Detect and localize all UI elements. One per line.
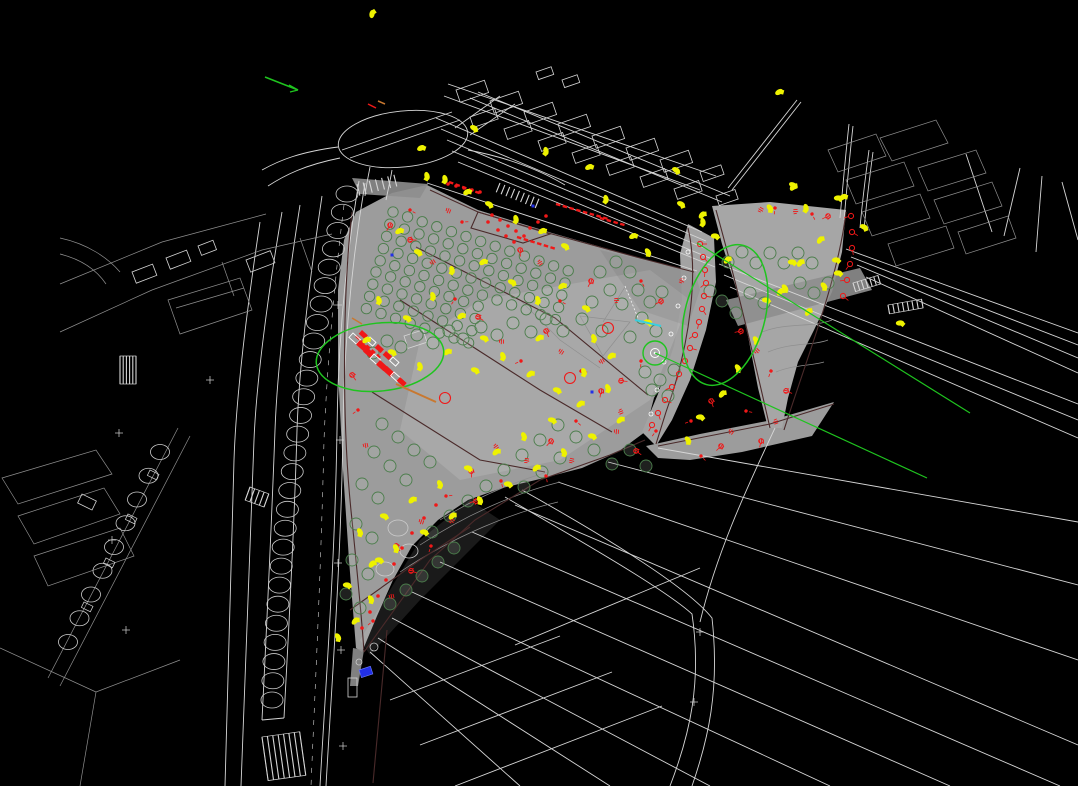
tree-canopy (498, 464, 510, 476)
tree-canopy (668, 364, 680, 376)
tree-canopy (654, 374, 666, 386)
yellow-blob (581, 401, 584, 406)
survey-tick (334, 559, 342, 567)
tree-canopy (378, 243, 388, 253)
tree-canopy (646, 384, 658, 396)
street-tree (82, 587, 101, 602)
tree-canopy (402, 212, 412, 222)
tree-canopy (487, 253, 497, 263)
building-outline (562, 75, 580, 88)
yellow-point-marker (733, 363, 742, 373)
hatch-bar (294, 732, 300, 776)
road-line (412, 592, 830, 786)
red-dash (576, 209, 581, 213)
blue-point (591, 391, 594, 394)
red-point (368, 610, 372, 614)
street-tree (267, 596, 289, 612)
tree-canopy (408, 444, 420, 456)
red-survey-marker (734, 328, 744, 335)
yellow-point-marker (774, 88, 784, 97)
tree-canopy (524, 292, 534, 302)
bench-outline (125, 514, 137, 524)
tree-canopy (454, 256, 464, 266)
tree-canopy (385, 272, 395, 282)
road-line (390, 636, 560, 700)
tree-canopy (484, 266, 494, 276)
roundabout-chord (342, 112, 452, 150)
tree-canopy (463, 285, 473, 295)
tree-canopy (432, 556, 444, 568)
tree-canopy (397, 289, 407, 299)
street-tree (310, 296, 332, 312)
yellow-point-marker (423, 171, 430, 181)
red-survey-marker (708, 398, 716, 408)
tree-canopy (624, 266, 636, 278)
tree-canopy (639, 366, 651, 378)
red-ring (848, 213, 854, 219)
orange-segment (378, 101, 385, 104)
road-line (851, 257, 1078, 345)
yellow-blob (783, 289, 788, 293)
tree-canopy (388, 207, 398, 217)
red-point (528, 226, 532, 230)
tree-canopy (416, 570, 428, 582)
tree-canopy (446, 226, 456, 236)
road-line (728, 100, 797, 188)
yellow-blob (822, 287, 827, 291)
red-point (536, 220, 540, 224)
street-tree (128, 492, 147, 507)
yellow-point-marker (699, 217, 706, 227)
tree-canopy (610, 256, 622, 268)
hatch-bar (284, 734, 290, 778)
tree-canopy (444, 291, 454, 301)
tree-canopy (594, 266, 606, 278)
tree-canopy (381, 231, 391, 241)
building-outline (166, 250, 191, 269)
tree-canopy (414, 229, 424, 239)
hatch-bar (535, 199, 539, 208)
tree-canopy (808, 287, 820, 299)
yellow-point-marker (676, 200, 686, 209)
detail-line (934, 182, 1002, 224)
tree-canopy (400, 474, 412, 486)
hatch-bar (264, 494, 269, 507)
tree-canopy (490, 241, 500, 251)
red-stem (846, 266, 849, 270)
tree-canopy (381, 335, 393, 347)
detail-line (60, 254, 106, 284)
detail-line (168, 278, 252, 334)
red-level-marker (848, 228, 859, 237)
road-line (370, 652, 520, 786)
tree-canopy (376, 418, 388, 430)
road-line (472, 532, 1060, 786)
hatch-bar (917, 300, 919, 309)
tree-canopy (534, 434, 546, 446)
hatch-bar (912, 301, 914, 310)
hatch-bar (278, 735, 284, 779)
tree-canopy (521, 305, 531, 315)
detail-line (862, 194, 930, 236)
tree-canopy (557, 325, 569, 337)
hatch-area (262, 732, 306, 781)
tree-canopy (394, 301, 404, 311)
tree-canopy (576, 313, 588, 325)
road-line (262, 147, 338, 170)
red-stem (854, 233, 858, 235)
red-tick (703, 458, 705, 461)
survey-tick (339, 742, 347, 750)
tree-canopy (424, 456, 436, 468)
road-line (225, 222, 260, 786)
tree-canopy (433, 275, 443, 285)
blue-symbol (359, 666, 373, 677)
tree-canopy (466, 273, 476, 283)
tree-canopy (501, 258, 511, 268)
tree-canopy (516, 263, 526, 273)
street-tree (281, 464, 303, 480)
red-point (376, 594, 380, 598)
red-point (392, 562, 396, 566)
hatch-bar (516, 191, 520, 200)
red-point (360, 626, 364, 630)
red-point (434, 503, 438, 507)
road-line (448, 84, 716, 176)
building-outline (198, 240, 217, 255)
road-line (505, 497, 696, 786)
tree-canopy (371, 267, 381, 277)
tree-canopy (644, 296, 656, 308)
tree-canopy (396, 236, 406, 246)
street-tree (279, 482, 301, 498)
street-tree (270, 558, 292, 574)
street-tree (93, 563, 112, 578)
survey-tick (115, 429, 123, 437)
tree-canopy (340, 588, 352, 600)
tree-canopy (400, 277, 410, 287)
red-tick (546, 479, 547, 482)
road-line (515, 505, 1078, 745)
tree-canopy (441, 304, 451, 314)
road-line (262, 718, 284, 720)
red-stem (845, 298, 848, 301)
hatch-bar (921, 299, 923, 308)
survey-tick (122, 626, 130, 634)
tree-canopy (794, 277, 806, 289)
red-level-marker (844, 260, 854, 271)
tree-canopy (400, 584, 412, 596)
red-ring (848, 228, 855, 235)
yellow-point-marker (628, 232, 638, 241)
yellow-blob (367, 337, 371, 342)
tree-canopy (411, 329, 423, 341)
tree-canopy (443, 325, 455, 337)
tree-canopy (506, 300, 516, 310)
tree-canopy (448, 542, 460, 554)
yellow-blob (621, 417, 624, 422)
tree-canopy (518, 481, 530, 493)
red-dash (613, 221, 618, 225)
red-point (384, 578, 388, 582)
road-line (455, 706, 662, 786)
tree-canopy (475, 321, 487, 333)
tree-canopy (423, 311, 433, 321)
detail-line (888, 226, 954, 266)
red-stem (638, 452, 641, 454)
hatch-bar (907, 302, 909, 311)
tree-canopy (417, 217, 427, 227)
yellow-blob (703, 212, 707, 217)
yellow-point-marker (484, 200, 494, 209)
yellow-blob (768, 209, 773, 213)
red-dot (744, 409, 749, 414)
yellow-point-marker (896, 320, 906, 327)
red-point (400, 546, 404, 550)
street-tree (70, 611, 89, 626)
tree-canopy (531, 268, 541, 278)
hatch-bar (300, 732, 306, 776)
red-stem (840, 280, 844, 281)
red-stem (712, 403, 714, 407)
detail-line (828, 134, 886, 172)
hatch-bar (898, 303, 900, 312)
tree-canopy (548, 261, 558, 271)
tree-canopy (368, 446, 380, 458)
road-line (860, 150, 869, 228)
tree-canopy (364, 291, 374, 301)
tree-canopy (427, 337, 439, 349)
red-point (490, 213, 494, 217)
tree-canopy (640, 460, 652, 472)
detail-line (60, 436, 190, 686)
tree-canopy (716, 295, 728, 307)
tree-canopy (375, 256, 385, 266)
hatch-bar (902, 302, 904, 311)
detail-line (176, 288, 244, 308)
detail-line (880, 120, 948, 161)
tree-canopy (428, 234, 438, 244)
tree-canopy (505, 246, 515, 256)
tree-canopy (557, 290, 567, 300)
hatch-area (888, 299, 923, 314)
tree-canopy (606, 458, 618, 470)
tree-canopy (368, 279, 378, 289)
yellow-blob (686, 441, 691, 445)
tree-canopy (440, 251, 450, 261)
tree-canopy (516, 449, 528, 461)
tree-canopy (624, 331, 636, 343)
tree-canopy (354, 602, 366, 614)
yellow-blob (728, 256, 732, 261)
tree-canopy (545, 273, 555, 283)
tree-canopy (372, 492, 384, 504)
tree-canopy (419, 270, 429, 280)
hatch-bar (501, 185, 505, 194)
tree-canopy (510, 288, 520, 298)
yellow-point-marker (542, 146, 549, 156)
road-line (515, 568, 700, 645)
tree-canopy (443, 239, 453, 249)
tree-canopy (570, 431, 582, 443)
yellow-blob (540, 335, 543, 340)
tree-canopy (346, 554, 358, 566)
yellow-blob (531, 371, 535, 376)
yellow-blob (497, 449, 500, 454)
tree-canopy (507, 317, 519, 329)
road-line (857, 265, 1078, 358)
red-point (496, 228, 500, 232)
hatch-area (245, 487, 269, 507)
cad-viewport (0, 0, 1078, 786)
tree-canopy (527, 280, 537, 290)
red-point (506, 224, 510, 228)
hatch-bar (511, 189, 515, 198)
survey-tick (690, 698, 698, 706)
detail-line (96, 660, 180, 692)
hatch-bar (245, 487, 250, 500)
tree-canopy (475, 236, 485, 246)
tree-canopy (461, 231, 471, 241)
hatch-area (120, 356, 136, 384)
hatch-bar (259, 492, 264, 505)
tree-canopy (448, 280, 458, 290)
red-dash (606, 219, 611, 223)
tree-canopy (525, 326, 537, 338)
red-dash (562, 205, 567, 209)
street-tree (276, 501, 298, 517)
bench-outline (147, 470, 159, 480)
hatch-bar (273, 735, 279, 779)
detail-line (0, 648, 96, 786)
street-tree (306, 314, 328, 330)
tree-canopy (384, 460, 396, 472)
tree-canopy (480, 278, 490, 288)
red-point (522, 234, 526, 238)
tree-canopy (469, 261, 479, 271)
road-line (262, 205, 300, 720)
red-dash-row (556, 203, 608, 220)
survey-tick (337, 646, 345, 654)
path-edge-line (373, 630, 387, 783)
tree-canopy (498, 270, 508, 280)
street-tree (59, 635, 78, 650)
yellow-blob (462, 313, 466, 318)
red-point (410, 531, 414, 535)
yellow-point-marker (717, 389, 726, 399)
yellow-blob (448, 349, 452, 354)
tree-canopy (384, 598, 396, 610)
tree-canopy (395, 341, 407, 353)
red-point (486, 220, 490, 224)
street-tree (269, 577, 291, 593)
green-arrow (265, 77, 298, 90)
tree-canopy (604, 284, 616, 296)
red-point (512, 240, 516, 244)
tree-canopy (437, 316, 447, 326)
tree-canopy (457, 333, 469, 345)
street-tree (262, 673, 284, 689)
street-tree (151, 445, 170, 460)
hatch-bar (496, 183, 500, 192)
tree-canopy (730, 307, 742, 319)
tree-canopy (350, 518, 362, 530)
yellow-point-marker (369, 9, 377, 19)
tree-canopy (596, 325, 608, 337)
road-line (378, 638, 610, 786)
hatch-bar (893, 304, 895, 313)
tree-canopy (437, 263, 447, 273)
tree-canopy (495, 283, 505, 293)
tree-canopy (432, 222, 442, 232)
yellow-blob (356, 618, 360, 623)
red-level-marker (849, 245, 856, 255)
tree-canopy (744, 287, 756, 299)
roundabout (335, 104, 470, 173)
tree-canopy (382, 284, 392, 294)
cad-viewport-canvas[interactable] (0, 0, 1078, 786)
red-survey-marker (744, 408, 753, 415)
blue-point (391, 254, 394, 257)
red-tick (685, 422, 688, 423)
road-line (864, 152, 873, 230)
detail-line (2, 450, 112, 504)
detail-line (60, 234, 332, 332)
tree-canopy (393, 248, 403, 258)
tree-canopy (458, 296, 468, 306)
tree-canopy (392, 431, 404, 443)
tree-canopy (362, 568, 374, 580)
building-outline (700, 165, 724, 182)
building-outline (132, 264, 157, 283)
yellow-point-marker (416, 144, 426, 152)
red-point (544, 214, 548, 218)
tree-canopy (553, 302, 563, 312)
road-line (844, 126, 853, 220)
hatch-bar (525, 195, 529, 204)
red-tick (749, 411, 752, 413)
street-tree (264, 634, 286, 650)
street-tree (263, 654, 285, 670)
road-line (732, 102, 801, 190)
red-dash (569, 207, 574, 211)
road-line (392, 618, 710, 786)
road-line (1036, 176, 1042, 252)
yellow-blob (414, 497, 417, 502)
hatch-box (120, 356, 136, 384)
detail-line (300, 238, 312, 272)
red-point (498, 218, 502, 222)
tree-canopy (407, 253, 417, 263)
road-line (522, 490, 715, 786)
red-dash (620, 223, 625, 227)
red-point (504, 234, 508, 238)
red-ring (849, 245, 855, 251)
street-tree (287, 426, 309, 442)
tree-canopy (736, 246, 748, 258)
building-outline (674, 181, 702, 200)
tree-canopy (588, 444, 600, 456)
tree-canopy (477, 290, 487, 300)
hatch-bar (521, 193, 525, 202)
tree-canopy (563, 266, 573, 276)
tree-canopy (656, 286, 668, 298)
street-tree (274, 520, 296, 536)
yellow-point-marker (696, 414, 706, 421)
street-tree (314, 278, 336, 294)
tree-canopy (480, 480, 492, 492)
yellow-blob (612, 353, 616, 358)
